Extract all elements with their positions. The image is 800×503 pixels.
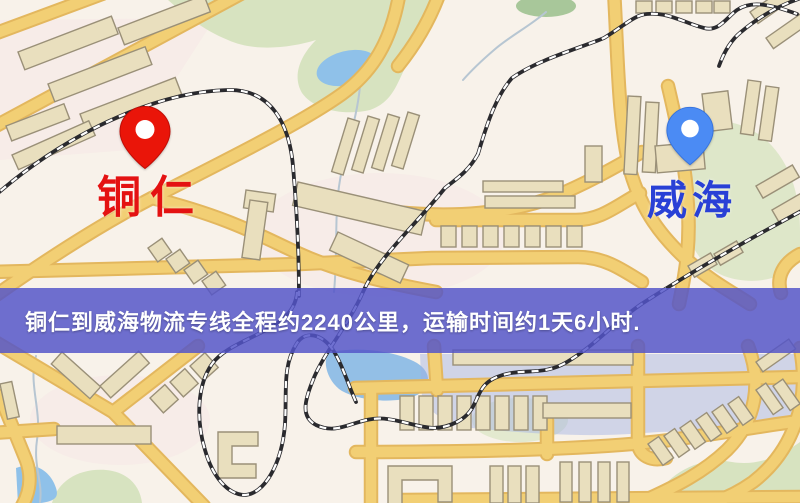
destination-pin[interactable] xyxy=(665,105,715,167)
map-canvas xyxy=(0,0,800,503)
origin-pin[interactable] xyxy=(118,104,172,171)
blue-pin-icon xyxy=(665,105,715,167)
red-pin-icon xyxy=(118,104,172,171)
origin-label: 铜仁 xyxy=(97,176,203,220)
route-info-banner: 铜仁到威海物流专线全程约2240公里，运输时间约1天6小时. xyxy=(0,288,800,353)
map[interactable]: 铜仁 威海 铜仁到威海物流专线全程约2240公里，运输时间约1天6小时. xyxy=(0,0,800,503)
destination-label: 威海 xyxy=(647,181,737,221)
route-info-text: 铜仁到威海物流专线全程约2240公里，运输时间约1天6小时. xyxy=(25,305,641,337)
